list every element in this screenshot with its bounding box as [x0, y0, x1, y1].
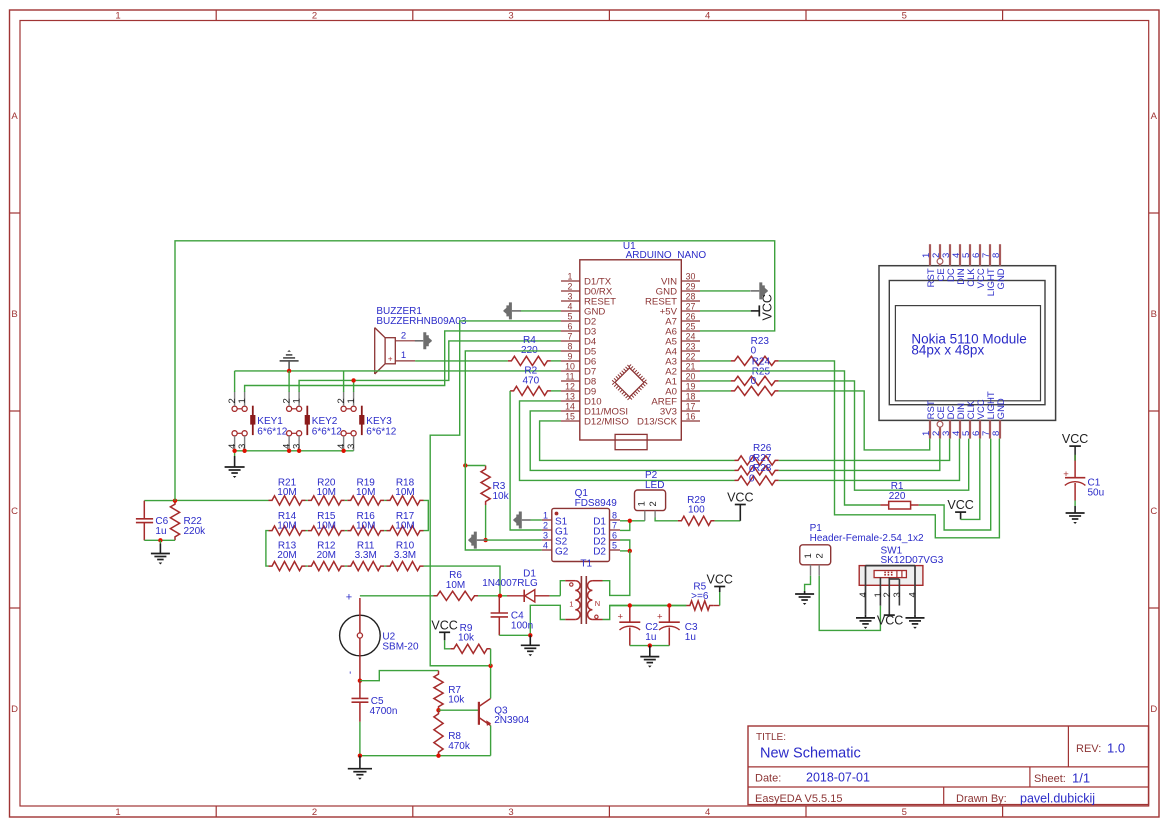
svg-text:470k: 470k [448, 741, 471, 752]
svg-text:8: 8 [991, 431, 1002, 436]
svg-text:2: 2 [401, 330, 406, 341]
svg-text:Drawn By:: Drawn By: [956, 793, 1007, 805]
svg-text:100n: 100n [511, 620, 533, 631]
svg-text:2018-07-01: 2018-07-01 [806, 771, 870, 785]
svg-text:2: 2 [312, 807, 317, 818]
svg-text:10M: 10M [446, 580, 465, 591]
svg-text:D12/MISO: D12/MISO [584, 417, 629, 428]
svg-text:1: 1 [803, 553, 814, 558]
svg-text:20: 20 [686, 372, 696, 382]
svg-text:1: 1 [568, 272, 573, 282]
svg-text:C: C [1150, 506, 1157, 517]
svg-text:VCC: VCC [1062, 432, 1088, 446]
svg-text:23: 23 [686, 342, 696, 352]
svg-text:pavel.dubickij: pavel.dubickij [1020, 792, 1095, 806]
svg-text:VCC: VCC [727, 491, 753, 505]
svg-text:18: 18 [686, 392, 696, 402]
svg-text:7: 7 [612, 521, 617, 531]
svg-text:GND: GND [996, 268, 1007, 289]
svg-text:+: + [657, 612, 663, 623]
svg-text:6: 6 [568, 322, 573, 332]
svg-text:21: 21 [686, 362, 696, 372]
svg-text:FDS8949: FDS8949 [575, 498, 618, 509]
svg-text:1u: 1u [645, 632, 656, 643]
svg-text:3: 3 [568, 292, 573, 302]
svg-text:2: 2 [648, 501, 659, 506]
svg-text:G2: G2 [555, 547, 569, 558]
svg-text:4: 4 [908, 592, 919, 597]
svg-text:C: C [11, 506, 18, 517]
svg-text:3: 3 [892, 592, 903, 597]
svg-text:TITLE:: TITLE: [756, 732, 786, 743]
svg-text:5: 5 [902, 11, 907, 22]
svg-text:SK12D07VG3: SK12D07VG3 [881, 555, 944, 566]
svg-text:1N4007RLG: 1N4007RLG [482, 578, 538, 589]
svg-text:3: 3 [237, 444, 248, 449]
svg-text:R28: R28 [753, 463, 772, 474]
svg-text:Sheet:: Sheet: [1034, 773, 1066, 785]
svg-text:1u: 1u [155, 526, 166, 537]
svg-text:2: 2 [814, 553, 825, 558]
svg-text:10M: 10M [277, 487, 296, 498]
svg-text:10k: 10k [458, 633, 475, 644]
svg-text:10k: 10k [448, 694, 465, 705]
svg-text:5: 5 [612, 541, 617, 551]
svg-text:8: 8 [991, 253, 1002, 258]
svg-text:24: 24 [686, 332, 696, 342]
svg-text:0: 0 [749, 474, 755, 485]
svg-text:0: 0 [751, 346, 757, 357]
svg-text:220k: 220k [184, 526, 207, 537]
svg-text:1: 1 [292, 398, 303, 403]
svg-text:16: 16 [686, 412, 696, 422]
svg-text:A: A [11, 111, 18, 122]
svg-text:4: 4 [858, 592, 869, 597]
svg-text:4: 4 [568, 302, 573, 312]
svg-text:8: 8 [568, 342, 573, 352]
svg-text:4: 4 [705, 807, 710, 818]
svg-text:10k: 10k [493, 491, 510, 502]
svg-text:D: D [1150, 704, 1157, 715]
svg-text:GND: GND [996, 398, 1007, 419]
svg-text:22: 22 [686, 352, 696, 362]
svg-text:1: 1 [115, 807, 120, 818]
svg-text:3.3M: 3.3M [394, 550, 416, 561]
svg-text:2: 2 [568, 282, 573, 292]
svg-text:13: 13 [565, 392, 575, 402]
svg-text:3.3M: 3.3M [355, 550, 377, 561]
svg-text:6*6*12: 6*6*12 [312, 426, 342, 437]
svg-text:470: 470 [522, 376, 539, 387]
svg-text:D13/SCK: D13/SCK [637, 417, 678, 428]
svg-text:12: 12 [565, 382, 575, 392]
svg-text:+: + [346, 592, 352, 604]
svg-text:10: 10 [565, 362, 575, 372]
svg-text:N: N [595, 599, 600, 608]
svg-text:1.0: 1.0 [1107, 741, 1125, 756]
svg-text:50u: 50u [1088, 487, 1105, 498]
svg-text:19: 19 [686, 382, 696, 392]
svg-text:84px x 48px: 84px x 48px [911, 343, 984, 358]
svg-text:28: 28 [686, 292, 696, 302]
svg-text:7: 7 [568, 332, 573, 342]
svg-text:': ' [349, 671, 351, 682]
svg-text:20M: 20M [317, 550, 336, 561]
svg-text:1: 1 [637, 501, 648, 506]
svg-text:Header-Female-2.54_1x2: Header-Female-2.54_1x2 [810, 533, 924, 544]
svg-text:15: 15 [565, 412, 575, 422]
svg-text:B: B [11, 309, 17, 320]
svg-text:3: 3 [346, 444, 357, 449]
svg-text:4700n: 4700n [370, 706, 398, 717]
svg-text:10M: 10M [317, 521, 336, 532]
svg-text:Date:: Date: [755, 773, 781, 785]
svg-text:VCC: VCC [947, 498, 973, 512]
svg-text:D2: D2 [593, 547, 606, 558]
svg-text:26: 26 [686, 312, 696, 322]
svg-text:10M: 10M [395, 487, 414, 498]
svg-text:5: 5 [902, 807, 907, 818]
svg-text:BUZZERHNB09A03: BUZZERHNB09A03 [376, 316, 466, 327]
svg-text:1: 1 [401, 350, 406, 361]
svg-text:3: 3 [508, 807, 513, 818]
svg-text:B: B [1151, 309, 1157, 320]
svg-text:20M: 20M [277, 550, 296, 561]
svg-text:10M: 10M [356, 487, 375, 498]
svg-text:EasyEDA V5.5.15: EasyEDA V5.5.15 [755, 793, 842, 805]
svg-text:27: 27 [686, 302, 696, 312]
svg-text:1: 1 [346, 398, 357, 403]
svg-text:1: 1 [543, 511, 548, 521]
svg-text:4: 4 [543, 541, 548, 551]
svg-text:9: 9 [568, 352, 573, 362]
svg-text:2: 2 [543, 521, 548, 531]
svg-text:VCC: VCC [877, 614, 903, 628]
svg-text:6*6*12: 6*6*12 [366, 426, 396, 437]
svg-text:VCC: VCC [706, 573, 732, 587]
svg-text:D: D [11, 704, 18, 715]
svg-text:6*6*12: 6*6*12 [257, 426, 287, 437]
svg-text:10M: 10M [395, 521, 414, 532]
svg-text:2N3904: 2N3904 [494, 715, 529, 726]
svg-text:14: 14 [565, 402, 575, 412]
svg-text:5: 5 [568, 312, 573, 322]
svg-text:1/1: 1/1 [1072, 771, 1090, 786]
svg-text:+: + [388, 354, 393, 363]
svg-text:3: 3 [508, 11, 513, 22]
svg-text:+: + [1063, 469, 1069, 480]
svg-text:4: 4 [705, 11, 710, 22]
svg-text:VCC: VCC [761, 294, 775, 320]
svg-text:SBM-20: SBM-20 [382, 641, 419, 652]
svg-text:VCC: VCC [431, 618, 457, 632]
svg-text:100: 100 [688, 505, 705, 516]
svg-text:10M: 10M [317, 487, 336, 498]
svg-text:T1: T1 [580, 559, 592, 570]
svg-text:1: 1 [569, 600, 573, 609]
svg-text:8: 8 [612, 511, 617, 521]
svg-text:+: + [618, 612, 624, 623]
svg-text:1: 1 [237, 398, 248, 403]
svg-text:REV:: REV: [1076, 743, 1101, 755]
svg-text:29: 29 [686, 282, 696, 292]
svg-text:6: 6 [612, 531, 617, 541]
svg-text:New Schematic: New Schematic [760, 746, 861, 762]
svg-text:LED: LED [645, 480, 664, 491]
svg-text:10M: 10M [277, 521, 296, 532]
svg-text:220: 220 [889, 491, 906, 502]
svg-text:A: A [1151, 111, 1158, 122]
svg-text:1: 1 [115, 11, 120, 22]
svg-text:25: 25 [686, 322, 696, 332]
svg-text:11: 11 [565, 372, 574, 382]
svg-text:2: 2 [312, 11, 317, 22]
svg-text:17: 17 [686, 402, 696, 412]
svg-text:>=6: >=6 [691, 591, 709, 602]
svg-text:1u: 1u [685, 632, 696, 643]
svg-text:3: 3 [543, 531, 548, 541]
svg-text:0: 0 [751, 376, 757, 387]
svg-text:10M: 10M [356, 521, 375, 532]
svg-text:3: 3 [292, 444, 303, 449]
svg-text:30: 30 [686, 272, 696, 282]
